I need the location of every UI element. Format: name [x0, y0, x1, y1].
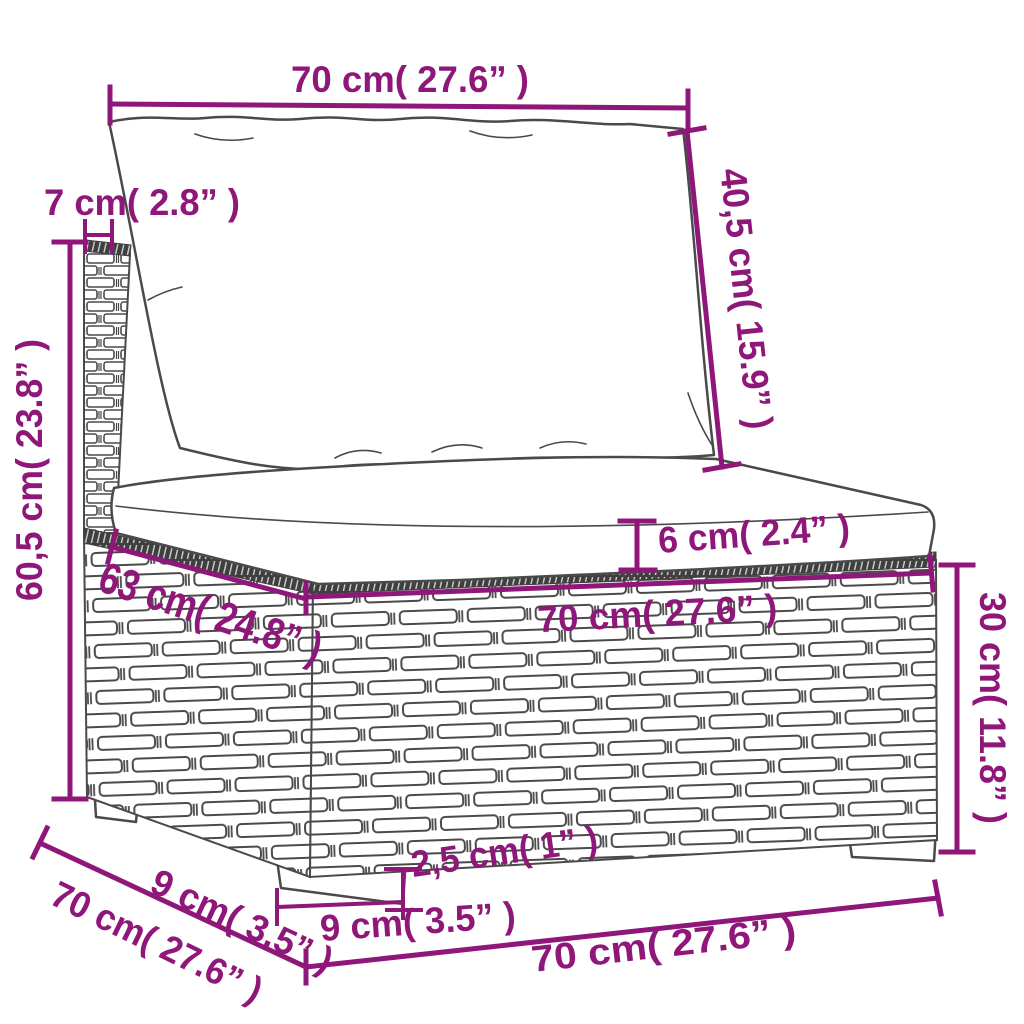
product-dimension-diagram: 70 cm( 27.6” ) 40,5 cm( 15.9” ) 7 cm( 2.… — [0, 0, 1024, 1024]
dim-total-height: 60,5 cm( 23.8” ) — [9, 242, 86, 799]
dim-total-width-label: 70 cm( 27.6” ) — [529, 909, 798, 980]
dim-base-height-label: 30 cm( 11.8” ) — [972, 592, 1013, 824]
dim-back-cushion-width: 70 cm( 27.6” ) — [110, 59, 688, 127]
dim-back-panel-thickness-label: 7 cm( 2.8” ) — [44, 182, 240, 223]
dim-back-cushion-width-label: 70 cm( 27.6” ) — [291, 59, 529, 100]
sofa-dimension-drawing: 70 cm( 27.6” ) 40,5 cm( 15.9” ) 7 cm( 2.… — [0, 0, 1024, 1024]
dim-total-height-label: 60,5 cm( 23.8” ) — [9, 339, 50, 601]
dim-base-height: 30 cm( 11.8” ) — [941, 565, 1013, 852]
back-cushion — [109, 117, 714, 469]
dim-back-cushion-height-label: 40,5 cm( 15.9” ) — [712, 166, 780, 431]
